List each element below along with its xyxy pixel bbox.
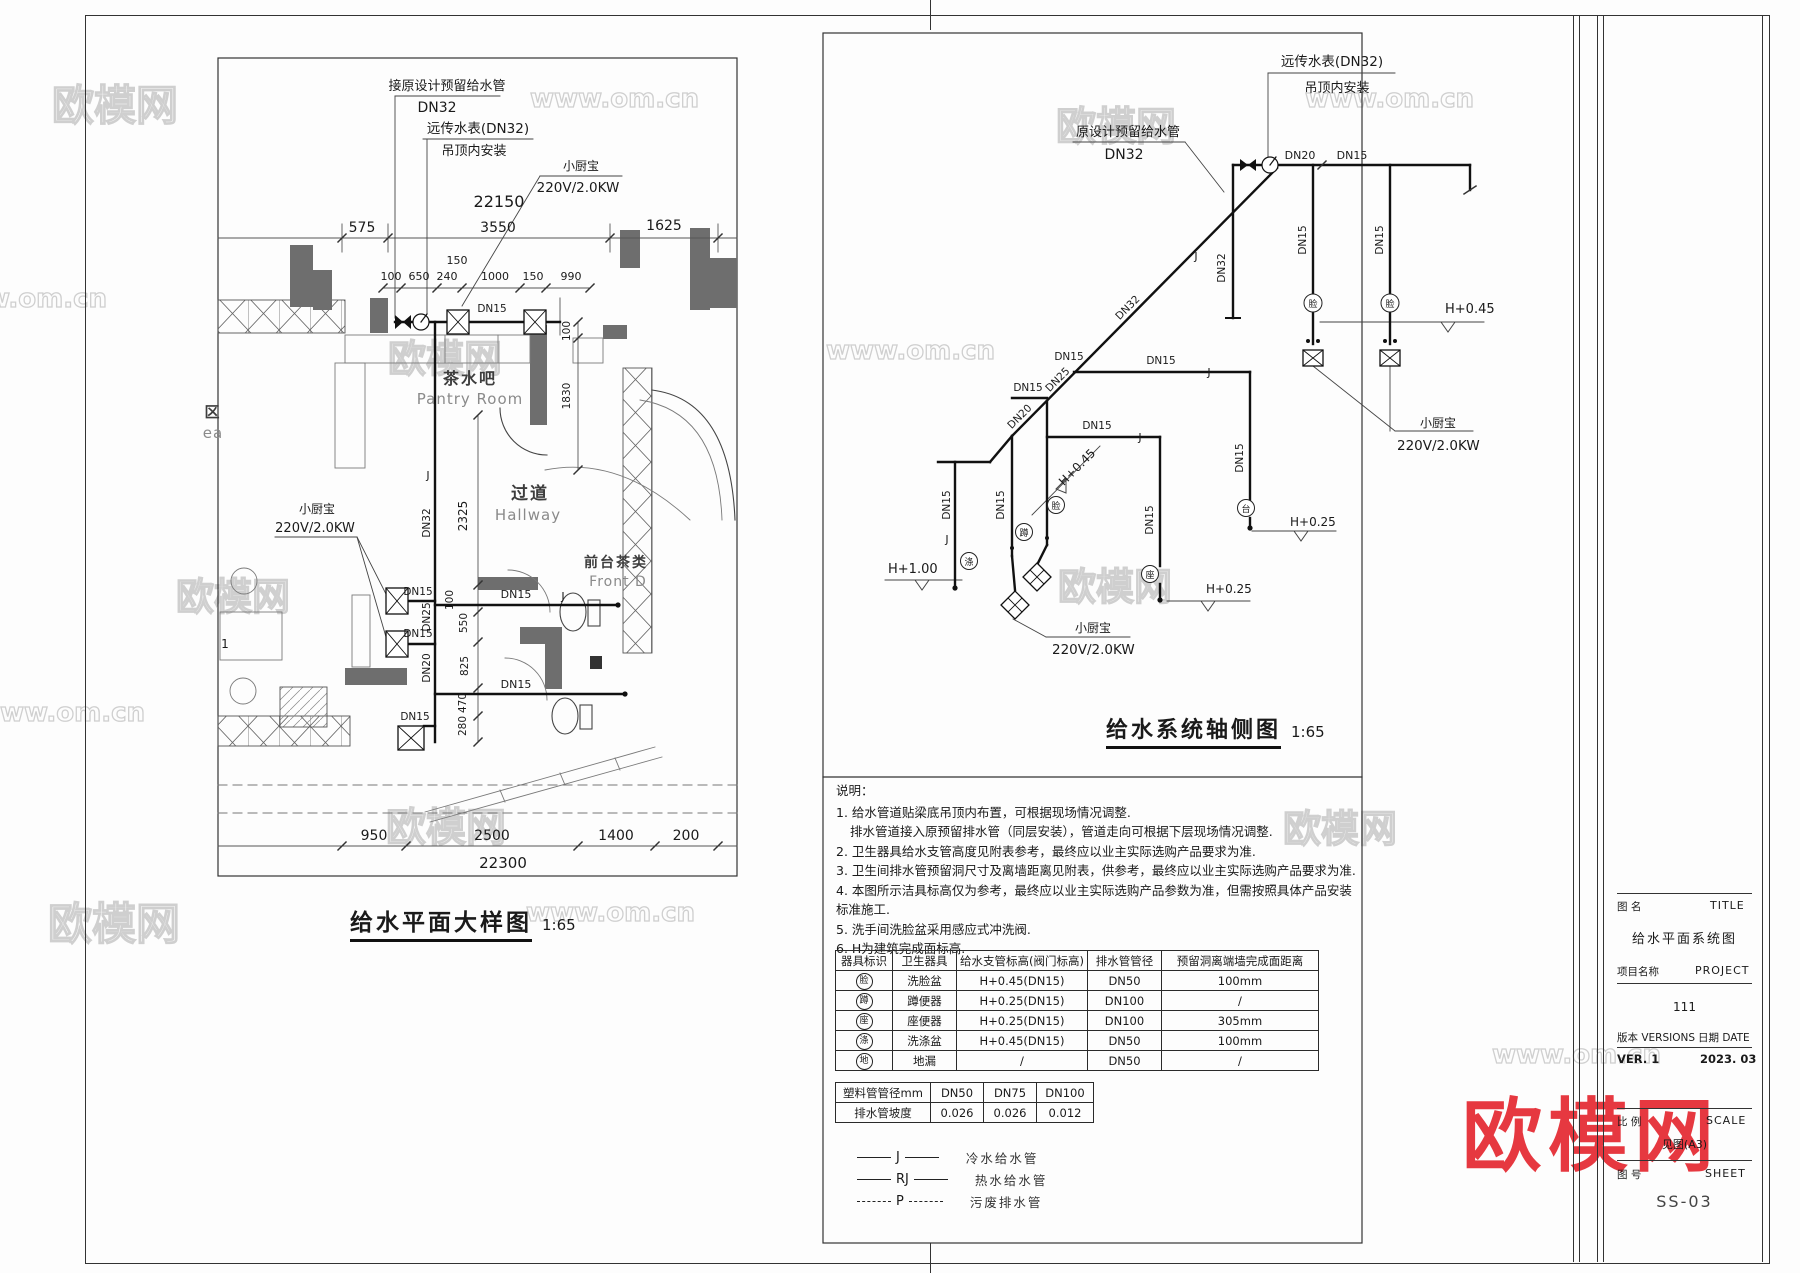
- drawing-label: 过道: [511, 483, 549, 504]
- drawing-label: 小厨宝: [563, 159, 599, 173]
- cad-sheet: 欧模网www.om.cnwww.om.cn欧模网www.om.cn欧模网www.…: [0, 0, 1800, 1273]
- drawing-label: 远传水表(DN32): [1281, 54, 1383, 70]
- fixture-table-cell: DN50: [1087, 1031, 1161, 1051]
- drawing-label: 220V/2.0KW: [1397, 438, 1480, 454]
- notes-block: 说明： 1. 给水管道贴梁底吊顶内布置，可根据现场情况调整.排水管道接入原预留排…: [836, 781, 1361, 959]
- fixture-symbol: 蹲: [856, 993, 873, 1010]
- drawing-label: DN15: [403, 628, 432, 640]
- fixture-table-cell: 地漏: [893, 1051, 957, 1071]
- fixture-table-header: 器具标识: [836, 951, 893, 971]
- slope-table: 塑料管管径mmDN50DN75DN100排水管坡度0.0260.0260.012: [835, 1082, 1094, 1123]
- drawing-label: 1830: [561, 383, 573, 410]
- legend-item: P污废排水管: [852, 1190, 1047, 1212]
- fixture-table-row: 蹲蹲便器H+0.25(DN15)DN100/: [836, 991, 1319, 1011]
- drawing-label: 茶水吧: [442, 369, 497, 388]
- drawing-label: 950: [361, 828, 388, 844]
- fixture-table-header: 卫生器具: [893, 951, 957, 971]
- drawing-label: 150: [523, 270, 544, 283]
- drawing-label: 150: [447, 254, 468, 267]
- fixture-symbol: 涤: [856, 1033, 873, 1050]
- drawing-label: 脸: [1385, 298, 1394, 310]
- fixture-table-cell: 地: [836, 1051, 893, 1071]
- plan-title: 给水平面大样图1:65: [350, 903, 576, 937]
- fixture-table: 器具标识卫生器具给水支管标高(阀门标高)排水管管径预留洞离端墙完成面距离脸洗脸盆…: [835, 950, 1319, 1071]
- drawing-label: DN20: [1285, 149, 1316, 162]
- fixture-table-cell: H+0.45(DN15): [957, 971, 1088, 991]
- fixture-table-row: 脸洗脸盆H+0.45(DN15)DN50100mm: [836, 971, 1319, 991]
- legend-item: J冷水给水管: [852, 1146, 1047, 1168]
- drawing-label: DN32: [417, 100, 456, 116]
- axon-labels: 远传水表(DN32)吊顶内安装原设计预留给水管DN32DN20DN15DN32D…: [888, 54, 1495, 658]
- drawing-label: ea: [203, 424, 223, 442]
- drawing-label: 220V/2.0KW: [275, 521, 355, 536]
- axon-title-text: 给水系统轴侧图: [1106, 718, 1281, 749]
- drawing-label: H+0.25: [1206, 582, 1252, 596]
- drawing-label: H+0.45: [1056, 446, 1098, 488]
- drawing-label: 2500: [474, 828, 510, 844]
- drawing-label: 990: [561, 270, 582, 283]
- fixture-table-cell: 100mm: [1161, 1031, 1318, 1051]
- drawing-label: 100: [561, 321, 573, 341]
- drawing-label: 220V/2.0KW: [537, 180, 620, 196]
- slope-table-row: 塑料管管径mmDN50DN75DN100: [836, 1083, 1094, 1103]
- axon-title-scale: 1:65: [1291, 723, 1325, 741]
- fixture-table-cell: /: [1161, 1051, 1318, 1071]
- drawing-label: J: [1193, 250, 1197, 263]
- drawing-label: DN32: [421, 508, 433, 537]
- drawing-label: DN15: [1013, 382, 1042, 394]
- drawing-label: 1625: [646, 218, 682, 234]
- drawing-label: 240: [437, 270, 458, 283]
- drawing-label: 22150: [474, 192, 525, 211]
- note-line: 排水管道接入原预留排水管（同层安装），管道走向可根据下层现场情况调整.: [836, 822, 1361, 842]
- drawing-label: 原设计预留给水管: [1076, 125, 1180, 140]
- drawing-label: H+0.25: [1290, 515, 1336, 529]
- slope-table-cell: DN50: [931, 1083, 984, 1103]
- slope-table-cell: 塑料管管径mm: [836, 1083, 931, 1103]
- fixture-table-cell: 洗涤盆: [893, 1031, 957, 1051]
- tb-scale-value: 见图(A3): [1617, 1136, 1752, 1152]
- slope-table-cell: 0.026: [984, 1103, 1037, 1123]
- drawing-label: DN15: [403, 586, 432, 598]
- fixture-table-cell: H+0.25(DN15): [957, 1011, 1088, 1031]
- drawing-label: J: [944, 533, 948, 546]
- legend-item: RJ热水给水管: [852, 1168, 1047, 1190]
- note-line: 1. 给水管道贴梁底吊顶内布置，可根据现场情况调整.: [836, 803, 1361, 823]
- drawing-label: DN15: [995, 490, 1007, 519]
- drawing-label: DN15: [1144, 505, 1156, 534]
- drawing-label: 100: [444, 590, 456, 610]
- legend-symbol: RJ: [896, 1172, 909, 1187]
- fixture-symbol: 座: [856, 1013, 873, 1030]
- slope-table-cell: 0.012: [1037, 1103, 1094, 1123]
- tb-drawing-title: 给水平面系统图: [1617, 928, 1752, 947]
- tb-sheet-number: SS-03: [1617, 1192, 1752, 1211]
- note-line: 4. 本图所示洁具标高仅为参考，最终应以业主实际选购产品参数为准，但需按照具体产…: [836, 881, 1361, 920]
- fixture-table-cell: H+0.25(DN15): [957, 991, 1088, 1011]
- tb-version-value: VER. 1: [1617, 1052, 1659, 1066]
- drawing-label: DN15: [1337, 149, 1368, 162]
- fixture-table-cell: 蹲: [836, 991, 893, 1011]
- note-line: 3. 卫生间排水管预留洞尺寸及离墙距离见附表，供参考，最终应以业主实际选购产品要…: [836, 861, 1361, 881]
- drawing-label: 蹲: [1019, 527, 1028, 539]
- drawing-label: 470: [457, 693, 469, 713]
- drawing-label: 远传水表(DN32): [427, 121, 529, 137]
- drawing-label: DN32: [1216, 253, 1228, 282]
- drawing-label: J: [560, 590, 564, 603]
- drawing-label: 吊顶内安装: [441, 143, 506, 159]
- axon-title: 给水系统轴侧图1:65: [1106, 712, 1325, 744]
- drawing-label: DN15: [1297, 225, 1309, 254]
- tb-sheet-en: SHEET: [1705, 1167, 1746, 1180]
- drawing-label: 650: [409, 270, 430, 283]
- drawing-label: J: [1137, 431, 1141, 444]
- fixture-table-cell: 座便器: [893, 1011, 957, 1031]
- drawing-label: 280: [457, 716, 469, 736]
- drawing-label: 脸: [1051, 500, 1060, 512]
- drawing-label: DN20: [421, 653, 433, 682]
- drawing-label: DN15: [1082, 420, 1111, 432]
- legend-label: 污废排水管: [970, 1192, 1043, 1211]
- tb-name-label: 图 名: [1617, 899, 1641, 914]
- tb-name-en: TITLE: [1710, 899, 1745, 912]
- fixture-table-row: 地地漏/DN50/: [836, 1051, 1319, 1071]
- drawing-label: DN15: [1054, 351, 1083, 363]
- pipe-legend: J冷水给水管RJ热水给水管P污废排水管: [852, 1146, 1047, 1212]
- drawing-label: DN15: [1146, 355, 1175, 367]
- drawing-label: 接原设计预留给水管: [388, 78, 505, 94]
- fixture-table-cell: H+0.45(DN15): [957, 1031, 1088, 1051]
- drawing-label: DN15: [1234, 443, 1246, 472]
- drawing-label: Hallway: [495, 506, 561, 524]
- fixture-symbol: 地: [856, 1053, 873, 1070]
- drawing-label: 2325: [456, 501, 470, 532]
- drawing-label: DN15: [1374, 225, 1386, 254]
- drawing-label: 1400: [598, 828, 634, 844]
- legend-label: 冷水给水管: [966, 1148, 1039, 1167]
- fixture-table-cell: DN100: [1087, 991, 1161, 1011]
- notes-heading: 说明：: [836, 781, 1361, 801]
- drawing-label: 台: [1241, 503, 1250, 515]
- note-line: 2. 卫生器具给水支管高度见附表参考，最终应以业主实际选购产品要求为准.: [836, 842, 1361, 862]
- fixture-table-cell: 脸: [836, 971, 893, 991]
- fixture-table-cell: /: [1161, 991, 1318, 1011]
- slope-table-cell: DN75: [984, 1083, 1037, 1103]
- drawing-label: 小厨宝: [299, 502, 335, 516]
- fixture-table-row: 座座便器H+0.25(DN15)DN100305mm: [836, 1011, 1319, 1031]
- tb-date-value: 2023. 03: [1700, 1052, 1756, 1066]
- tb-scale-label: 比 例: [1617, 1114, 1641, 1129]
- drawing-label: DN15: [477, 303, 506, 315]
- fixture-symbol: 脸: [856, 973, 873, 990]
- drawing-label: Front D: [589, 574, 647, 590]
- drawing-label: DN15: [501, 678, 532, 691]
- fixture-table-cell: 座: [836, 1011, 893, 1031]
- drawing-label: J: [1206, 366, 1210, 379]
- fixture-table-row: 涤洗涤盆H+0.45(DN15)DN50100mm: [836, 1031, 1319, 1051]
- drawing-label: DN15: [501, 588, 532, 601]
- tb-project-en: PROJECT: [1695, 964, 1750, 977]
- drawing-label: 220V/2.0KW: [1052, 642, 1135, 658]
- drawing-label: 200: [673, 828, 700, 844]
- tb-sheet-label: 图 号: [1617, 1167, 1641, 1182]
- fixture-table-cell: 涤: [836, 1031, 893, 1051]
- fixture-table-cell: DN50: [1087, 1051, 1161, 1071]
- fixture-table-cell: 蹲便器: [893, 991, 957, 1011]
- drawing-label: Pantry Room: [417, 390, 523, 408]
- legend-symbol: P: [896, 1194, 904, 1209]
- plan-title-scale: 1:65: [542, 916, 576, 934]
- tb-scale-en: SCALE: [1706, 1114, 1746, 1127]
- drawing-label: 3550: [480, 220, 516, 236]
- drawing-label: 575: [349, 220, 376, 236]
- legend-symbol: J: [896, 1150, 900, 1165]
- drawing-label: DN32: [1104, 147, 1143, 163]
- tb-version-label: 版本 VERSIONS: [1617, 1030, 1695, 1045]
- legend-label: 热水给水管: [975, 1170, 1048, 1189]
- fixture-table-cell: 洗脸盆: [893, 971, 957, 991]
- drawing-label: 小厨宝: [1075, 621, 1111, 635]
- fixture-table-header: 排水管管径: [1087, 951, 1161, 971]
- drawing-label: 座: [1145, 569, 1154, 581]
- plan-drawing: [218, 58, 737, 876]
- fixture-table-cell: DN50: [1087, 971, 1161, 991]
- drawing-label: H+0.45: [1445, 302, 1495, 317]
- fixture-table-header: 预留洞离端墙完成面距离: [1161, 951, 1318, 971]
- fixture-table-cell: /: [957, 1051, 1088, 1071]
- fixture-table-cell: DN100: [1087, 1011, 1161, 1031]
- drawing-label: J: [425, 469, 429, 482]
- slope-table-cell: DN100: [1037, 1083, 1094, 1103]
- tb-project-label: 项目名称: [1617, 964, 1659, 979]
- fixture-table-header: 给水支管标高(阀门标高): [957, 951, 1088, 971]
- slope-table-cell: 0.026: [931, 1103, 984, 1123]
- drawing-label: 吊顶内安装: [1304, 80, 1369, 96]
- slope-table-row: 排水管坡度0.0260.0260.012: [836, 1103, 1094, 1123]
- drawing-label: 1: [221, 637, 229, 651]
- plan-title-text: 给水平面大样图: [350, 910, 532, 942]
- drawing-label: 小厨宝: [1420, 416, 1456, 430]
- drawing-label: 1000: [481, 270, 509, 283]
- fixture-table-cell: 305mm: [1161, 1011, 1318, 1031]
- drawing-label: H+1.00: [888, 562, 938, 577]
- drawing-label: DN15: [400, 711, 429, 723]
- drawing-label: 22300: [479, 854, 527, 872]
- slope-table-cell: 排水管坡度: [836, 1103, 931, 1123]
- drawing-label: 前台茶类: [584, 554, 648, 571]
- drawing-label: 区: [204, 403, 221, 421]
- drawing-label: 100: [381, 270, 402, 283]
- drawing-label: 825: [459, 656, 471, 676]
- drawing-label: 脸: [1308, 298, 1317, 310]
- drawing-label: DN15: [941, 490, 953, 519]
- tb-date-label: 日期 DATE: [1698, 1030, 1750, 1045]
- fixture-table-cell: 100mm: [1161, 971, 1318, 991]
- drawing-label: 550: [458, 613, 470, 633]
- note-line: 5. 洗手间洗脸盆采用感应式冲洗阀.: [836, 920, 1361, 940]
- drawing-label: 涤: [964, 556, 973, 568]
- tb-project-value: 111: [1617, 1000, 1752, 1014]
